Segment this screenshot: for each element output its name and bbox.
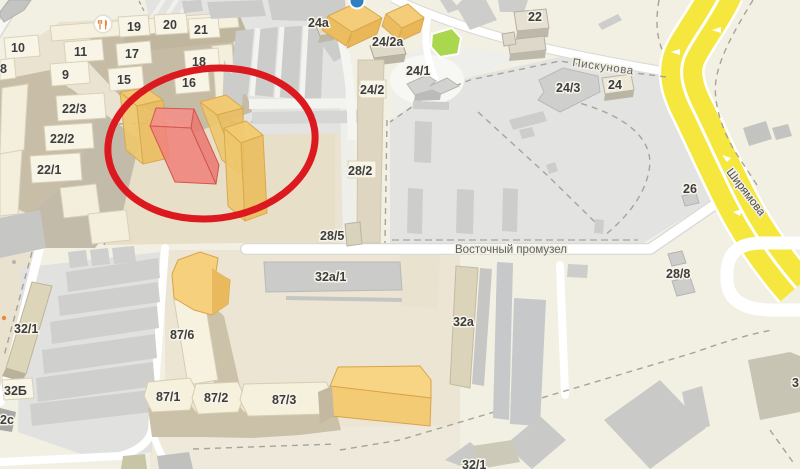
svg-text:28/8: 28/8 xyxy=(666,267,690,281)
svg-text:Восточный промузел: Восточный промузел xyxy=(455,244,567,256)
svg-text:22/2: 22/2 xyxy=(50,132,74,146)
svg-text:22/1: 22/1 xyxy=(37,163,61,177)
svg-text:22: 22 xyxy=(528,10,542,24)
svg-text:20: 20 xyxy=(163,18,177,32)
svg-text:32/1: 32/1 xyxy=(14,322,38,336)
svg-text:9: 9 xyxy=(62,68,69,82)
svg-text:87/3: 87/3 xyxy=(272,393,296,407)
svg-text:19: 19 xyxy=(127,20,141,34)
svg-text:24: 24 xyxy=(608,78,622,92)
svg-text:32/1: 32/1 xyxy=(462,458,486,469)
svg-text:24/2: 24/2 xyxy=(360,83,384,97)
svg-text:24/2а: 24/2а xyxy=(372,35,404,49)
svg-text:87/1: 87/1 xyxy=(156,390,180,404)
svg-text:17: 17 xyxy=(125,47,139,61)
svg-text:11: 11 xyxy=(74,45,87,59)
svg-text:22/3: 22/3 xyxy=(62,102,86,116)
svg-text:21: 21 xyxy=(194,23,208,37)
svg-text:28/5: 28/5 xyxy=(320,229,344,243)
svg-text:15: 15 xyxy=(117,73,131,87)
svg-text:32а/1: 32а/1 xyxy=(315,270,346,284)
svg-text:26: 26 xyxy=(683,182,697,196)
svg-text:32а: 32а xyxy=(453,315,475,329)
svg-text:24/3: 24/3 xyxy=(556,81,580,95)
svg-text:87/2: 87/2 xyxy=(204,391,228,405)
svg-text:2с: 2с xyxy=(0,413,14,427)
svg-text:24/1: 24/1 xyxy=(406,64,430,78)
svg-text:24а: 24а xyxy=(308,16,330,30)
svg-text:16: 16 xyxy=(182,76,196,90)
svg-text:28/2: 28/2 xyxy=(348,164,372,178)
svg-text:8: 8 xyxy=(0,62,7,76)
svg-text:87/6: 87/6 xyxy=(170,328,194,342)
svg-text:32Б: 32Б xyxy=(4,384,27,398)
svg-text:10: 10 xyxy=(11,41,25,55)
svg-text:3: 3 xyxy=(792,376,799,390)
